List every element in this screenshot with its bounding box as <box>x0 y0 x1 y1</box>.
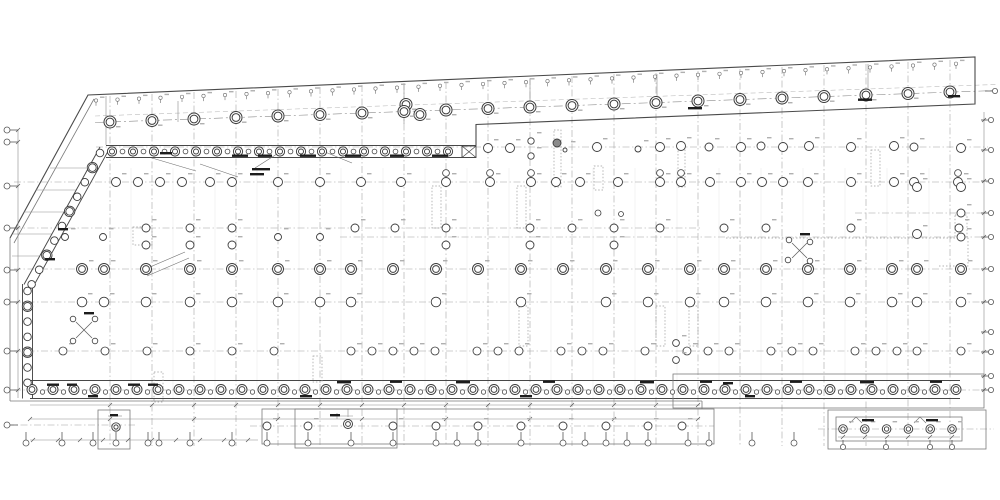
grid-bubble <box>23 440 29 446</box>
pile-cap <box>212 147 221 156</box>
pile-cap <box>785 257 791 263</box>
pile-cap <box>502 390 506 394</box>
pile-cap <box>228 241 236 249</box>
pile-cap <box>153 385 163 395</box>
pile-cap <box>468 385 478 395</box>
pile-cap <box>481 82 484 85</box>
pile-cap <box>309 90 312 93</box>
pile-cap <box>678 170 685 177</box>
micro-dim-mark <box>924 260 929 261</box>
pile-cap <box>868 66 871 69</box>
pile-cap <box>552 178 561 187</box>
micro-dim-mark <box>442 293 447 294</box>
micro-dim-mark <box>442 418 447 419</box>
pile-cap <box>804 385 814 395</box>
grid-bubble <box>949 444 954 449</box>
micro-dim-mark <box>326 293 331 294</box>
micro-text-label <box>148 384 158 386</box>
pile-cap <box>204 149 209 154</box>
pile-cap <box>389 347 397 355</box>
micro-dim-mark <box>466 81 471 82</box>
micro-dim-mark <box>494 113 499 114</box>
pile-cap <box>825 68 828 71</box>
pile-cap <box>24 333 32 341</box>
pile-cap <box>528 170 535 177</box>
pile-cap <box>90 385 100 395</box>
micro-dim-mark <box>208 92 213 93</box>
pile-cap <box>559 422 567 430</box>
pile-cap <box>438 84 441 87</box>
grid-bubble <box>113 440 119 446</box>
pile-cap <box>517 422 525 430</box>
pile-cap <box>880 390 884 394</box>
pile-cap-filled <box>553 139 561 147</box>
pile-cap <box>705 143 713 151</box>
blueprint-sheet: Structural foundation pile layout plan (… <box>0 0 1000 500</box>
pile-cap <box>178 178 187 187</box>
micro-dim-mark <box>644 140 649 141</box>
micro-dim-mark <box>638 74 643 75</box>
micro-dim-mark <box>682 335 687 336</box>
micro-dim-mark <box>401 219 406 220</box>
pile-cap <box>145 390 149 394</box>
pile-cap <box>447 385 457 395</box>
micro-dim-mark <box>900 137 905 138</box>
micro-dim-mark <box>166 173 171 174</box>
micro-dim-mark <box>116 126 121 127</box>
pile-cap <box>602 422 610 430</box>
pile-cap <box>720 385 730 395</box>
pile-cap <box>405 385 415 395</box>
pile-cap <box>553 139 561 147</box>
grid-bubble <box>791 440 797 446</box>
pile-cap <box>957 183 966 192</box>
micro-dim-mark <box>923 343 928 344</box>
pile-cap <box>73 193 81 201</box>
pile-cap <box>523 390 527 394</box>
micro-text-label <box>337 381 351 383</box>
micro-text-label <box>432 155 448 157</box>
pile-cap <box>487 170 494 177</box>
micro-dim-mark <box>967 178 972 179</box>
grid-bubble <box>988 178 993 183</box>
micro-dim-mark <box>682 352 687 353</box>
pile-cap <box>847 178 856 187</box>
micro-text-label <box>300 155 316 157</box>
pile-cap <box>274 178 283 187</box>
micro-text-label <box>640 381 654 383</box>
micro-dim-mark <box>358 85 363 86</box>
pile-cap <box>417 85 420 88</box>
micro-dim-mark <box>687 173 692 174</box>
pile-cap <box>817 390 821 394</box>
pile-cap <box>397 390 401 394</box>
pile-cap <box>718 72 721 75</box>
pile-cap <box>443 170 450 177</box>
micro-dim-mark <box>530 78 535 79</box>
micro-dim-mark <box>315 87 320 88</box>
grid-bubble <box>988 349 993 354</box>
pile-cap <box>526 241 534 249</box>
micro-dim-mark <box>284 228 289 229</box>
pile-cap <box>24 303 32 311</box>
pile-cap <box>524 80 527 83</box>
pile-cap <box>460 83 463 86</box>
pile-cap <box>510 385 520 395</box>
pile-cap <box>116 98 119 101</box>
pile-cap <box>431 347 439 355</box>
pile-cap <box>70 316 76 322</box>
micro-dim-mark <box>651 343 656 344</box>
floor-plan-drawing <box>0 0 1000 500</box>
pile-cap <box>174 385 184 395</box>
micro-dim-mark <box>939 61 944 62</box>
micro-dim-mark <box>586 173 591 174</box>
micro-dim-mark <box>914 98 919 99</box>
micro-text-label <box>860 381 874 383</box>
pile-cap <box>24 318 32 326</box>
pile-cap <box>887 297 897 307</box>
micro-dim-mark <box>452 236 457 237</box>
pile-cap <box>275 147 284 156</box>
top-edge-grid-ticks <box>94 60 964 106</box>
micro-dim-mark <box>188 173 193 174</box>
pile-cap <box>957 144 966 153</box>
pile-cap <box>526 224 534 232</box>
grid-bubble <box>988 234 993 239</box>
micro-dim-mark <box>196 236 201 237</box>
detail-box-piles <box>839 421 963 433</box>
micro-dim-mark <box>654 293 659 294</box>
pile-cap <box>474 422 482 430</box>
micro-dim-mark <box>152 219 157 220</box>
pile-cap <box>796 390 800 394</box>
micro-dim-mark <box>367 173 372 174</box>
pile-cap <box>59 347 67 355</box>
pile-cap <box>195 385 205 395</box>
micro-dim-mark <box>496 173 501 174</box>
pile-cap <box>263 422 271 430</box>
pile-cap <box>913 183 922 192</box>
grid-bubble <box>624 440 630 446</box>
pile-cap <box>342 385 352 395</box>
micro-dim-mark <box>882 343 887 344</box>
micro-dim-mark <box>368 117 373 118</box>
micro-dim-mark <box>570 260 575 261</box>
pile-cap <box>678 385 688 395</box>
pile-caps-right-extras <box>913 178 972 241</box>
grid-bubble <box>187 440 193 446</box>
pile-cap <box>355 390 359 394</box>
pile-cap <box>948 425 957 434</box>
micro-dim-mark <box>613 260 618 261</box>
micro-dim-mark <box>562 173 567 174</box>
pile-cap <box>754 390 758 394</box>
grid-bubble <box>390 440 396 446</box>
pile-cap <box>149 147 158 156</box>
pile-cap <box>432 422 440 430</box>
micro-dim-mark <box>968 260 973 261</box>
micro-dim-mark <box>967 343 972 344</box>
pile-cap <box>779 143 788 152</box>
pile-cap <box>578 347 586 355</box>
grid-bubble <box>988 117 993 122</box>
pile-cap <box>346 297 356 307</box>
grid-bubble <box>603 440 609 446</box>
micro-text-label <box>390 381 402 383</box>
micro-text-label <box>45 258 55 260</box>
micro-dim-mark <box>144 173 149 174</box>
pile-cap <box>719 297 729 307</box>
micro-dim-mark <box>552 77 557 78</box>
pile-cap <box>725 347 733 355</box>
grid-bubble <box>475 440 481 446</box>
micro-dim-mark <box>314 418 319 419</box>
pile-cap <box>619 212 624 217</box>
grid-bubbles-right <box>981 88 998 392</box>
micro-dim-mark <box>326 228 331 229</box>
pile-caps-row-b <box>62 219 970 249</box>
micro-dim-mark <box>485 260 490 261</box>
micro-dim-mark <box>831 65 836 66</box>
pile-cap <box>839 425 848 434</box>
micro-dim-mark <box>516 139 521 140</box>
micro-dim-mark <box>920 138 925 139</box>
micro-text-label <box>723 382 733 384</box>
pile-cap <box>99 297 109 307</box>
pile-cap <box>757 142 765 150</box>
micro-dim-mark <box>444 82 449 83</box>
pile-cap <box>372 149 377 154</box>
grid-bubble <box>988 387 993 392</box>
pile-cap <box>40 390 44 394</box>
pile-cap <box>677 178 686 187</box>
grid-bubble <box>840 444 845 449</box>
micro-dim-mark <box>378 343 383 344</box>
pile-cap <box>112 423 120 431</box>
micro-dim-mark <box>537 173 542 174</box>
micro-text-label <box>47 384 59 386</box>
annex-strip-piles <box>263 418 693 430</box>
micro-dim-mark <box>872 99 877 100</box>
pile-cap <box>48 385 58 395</box>
pile-cap <box>911 64 914 67</box>
grid-bubble <box>229 440 235 446</box>
micro-text-label <box>930 381 942 383</box>
micro-dim-mark <box>849 421 854 422</box>
pile-cap <box>546 79 549 82</box>
pile-cap <box>557 347 565 355</box>
pile-cap <box>442 178 451 187</box>
micro-dim-mark <box>967 228 972 229</box>
pile-cap <box>494 347 502 355</box>
pile-cap <box>951 385 961 395</box>
micro-dim-mark <box>111 343 116 344</box>
pile-cap <box>872 347 880 355</box>
micro-dim-mark <box>789 173 794 174</box>
micro-dim-mark <box>815 260 820 261</box>
micro-dim-mark <box>810 66 815 67</box>
micro-dim-mark <box>109 228 114 229</box>
micro-dim-mark <box>620 236 625 237</box>
micro-dim-mark <box>830 101 835 102</box>
micro-text-label <box>58 228 68 230</box>
micro-dim-mark <box>337 86 342 87</box>
micro-dim-mark <box>773 260 778 261</box>
grid-bubble <box>988 210 993 215</box>
pile-cap <box>77 297 87 307</box>
micro-dim-mark <box>536 111 541 112</box>
micro-dim-mark <box>655 260 660 261</box>
micro-text-label <box>88 395 98 397</box>
pile-cap <box>670 390 674 394</box>
grid-bubble <box>4 422 10 428</box>
micro-dim-mark <box>772 293 777 294</box>
pile-caps-row-d <box>77 293 971 307</box>
pile-cap <box>61 390 65 394</box>
grid-bubble <box>560 440 566 446</box>
pile-cap <box>890 178 899 187</box>
pile-cap <box>696 73 699 76</box>
micro-dim-mark <box>284 173 289 174</box>
pile-cap <box>699 385 709 395</box>
pile-cap <box>922 390 926 394</box>
pile-cap <box>460 390 464 394</box>
micro-dim-mark <box>452 173 457 174</box>
pile-cap <box>142 241 150 249</box>
micro-dim-mark <box>569 418 574 419</box>
micro-dim-mark <box>294 88 299 89</box>
pile-cap <box>24 287 32 295</box>
pile-cap <box>761 70 764 73</box>
micro-dim-mark <box>200 123 205 124</box>
micro-dim-mark <box>814 173 819 174</box>
micro-text-label <box>948 95 960 97</box>
micro-dim-mark <box>588 343 593 344</box>
micro-dim-mark <box>788 102 793 103</box>
pile-cap <box>567 79 570 82</box>
pile-cap <box>62 234 69 241</box>
pile-cap <box>563 148 567 152</box>
micro-dim-mark <box>152 293 157 294</box>
grid-bubble <box>59 440 65 446</box>
micro-text-label <box>67 384 77 386</box>
micro-text-label <box>543 381 555 383</box>
micro-dim-mark <box>143 95 148 96</box>
pile-cap <box>506 144 515 153</box>
pile-cap <box>96 149 104 157</box>
grid-bubble <box>988 373 993 378</box>
pile-cap <box>957 347 965 355</box>
pile-cap <box>706 178 715 187</box>
pile-cap <box>228 178 237 187</box>
micro-dim-mark <box>483 343 488 344</box>
pile-cap <box>610 224 618 232</box>
pile-cap <box>807 239 813 245</box>
pile-cap <box>316 178 325 187</box>
wall-endcap-cross <box>462 146 476 158</box>
micro-dim-mark <box>537 132 542 133</box>
micro-dim-mark <box>284 120 289 121</box>
micro-dim-mark <box>603 138 608 139</box>
pile-cap <box>635 146 641 152</box>
pile-cap <box>481 390 485 394</box>
grid-bubble <box>883 444 888 449</box>
grid-bubble <box>4 225 10 231</box>
micro-dim-mark <box>595 75 600 76</box>
pile-cap <box>882 425 891 434</box>
micro-dim-mark <box>899 260 904 261</box>
micro-text-label <box>345 155 361 157</box>
micro-dim-mark <box>960 60 965 61</box>
pile-cap <box>351 224 359 232</box>
micro-dim-mark <box>704 105 709 106</box>
pile-cap <box>890 65 893 68</box>
micro-dim-mark <box>967 293 972 294</box>
micro-text-label <box>456 381 470 383</box>
micro-dim-mark <box>238 173 243 174</box>
pile-cap <box>376 390 380 394</box>
opening-dotted-outline <box>726 238 968 266</box>
grid-bubbles-detail <box>840 440 954 450</box>
pile-cap <box>208 390 212 394</box>
pile-cap <box>304 422 312 430</box>
pile-cap <box>528 153 534 159</box>
micro-text-label <box>160 152 172 154</box>
misc-small-circles <box>595 210 624 217</box>
micro-dim-mark <box>731 260 736 261</box>
pile-cap <box>552 385 562 395</box>
micro-dim-mark <box>659 73 664 74</box>
pile-cap <box>782 69 785 72</box>
micro-dim-mark <box>452 114 457 115</box>
micro-dim-mark <box>400 260 405 261</box>
pile-cap <box>124 390 128 394</box>
grid-bubble <box>145 440 151 446</box>
micro-dim-mark <box>357 293 362 294</box>
pile-cap <box>186 241 194 249</box>
pile-cap <box>720 224 728 232</box>
pile-cap <box>632 76 635 79</box>
micro-dim-mark <box>898 293 903 294</box>
micro-text-label <box>232 155 248 157</box>
pile-cap <box>351 149 356 154</box>
pile-cap <box>675 74 678 77</box>
micro-dim-mark <box>716 173 721 174</box>
pile-cap <box>330 149 335 154</box>
cross-detail-marks <box>76 243 807 338</box>
micro-dim-mark <box>768 173 773 174</box>
pile-cap <box>955 224 963 232</box>
micro-dim-mark <box>326 173 331 174</box>
pile-cap <box>909 385 919 395</box>
micro-dim-mark <box>573 76 578 77</box>
pile-cap <box>156 178 165 187</box>
micro-dim-mark <box>923 178 928 179</box>
pile-cap <box>237 385 247 395</box>
pile-cap <box>704 347 712 355</box>
micro-dim-mark <box>735 343 740 344</box>
pile-cap <box>683 347 691 355</box>
pile-cap <box>223 93 226 96</box>
pile-cap <box>229 390 233 394</box>
micro-dim-mark <box>687 137 692 138</box>
micro-dim-mark <box>380 85 385 86</box>
micro-dim-mark <box>239 260 244 261</box>
micro-dim-mark <box>958 421 963 422</box>
micro-dim-mark <box>612 293 617 294</box>
pile-cap <box>761 297 771 307</box>
